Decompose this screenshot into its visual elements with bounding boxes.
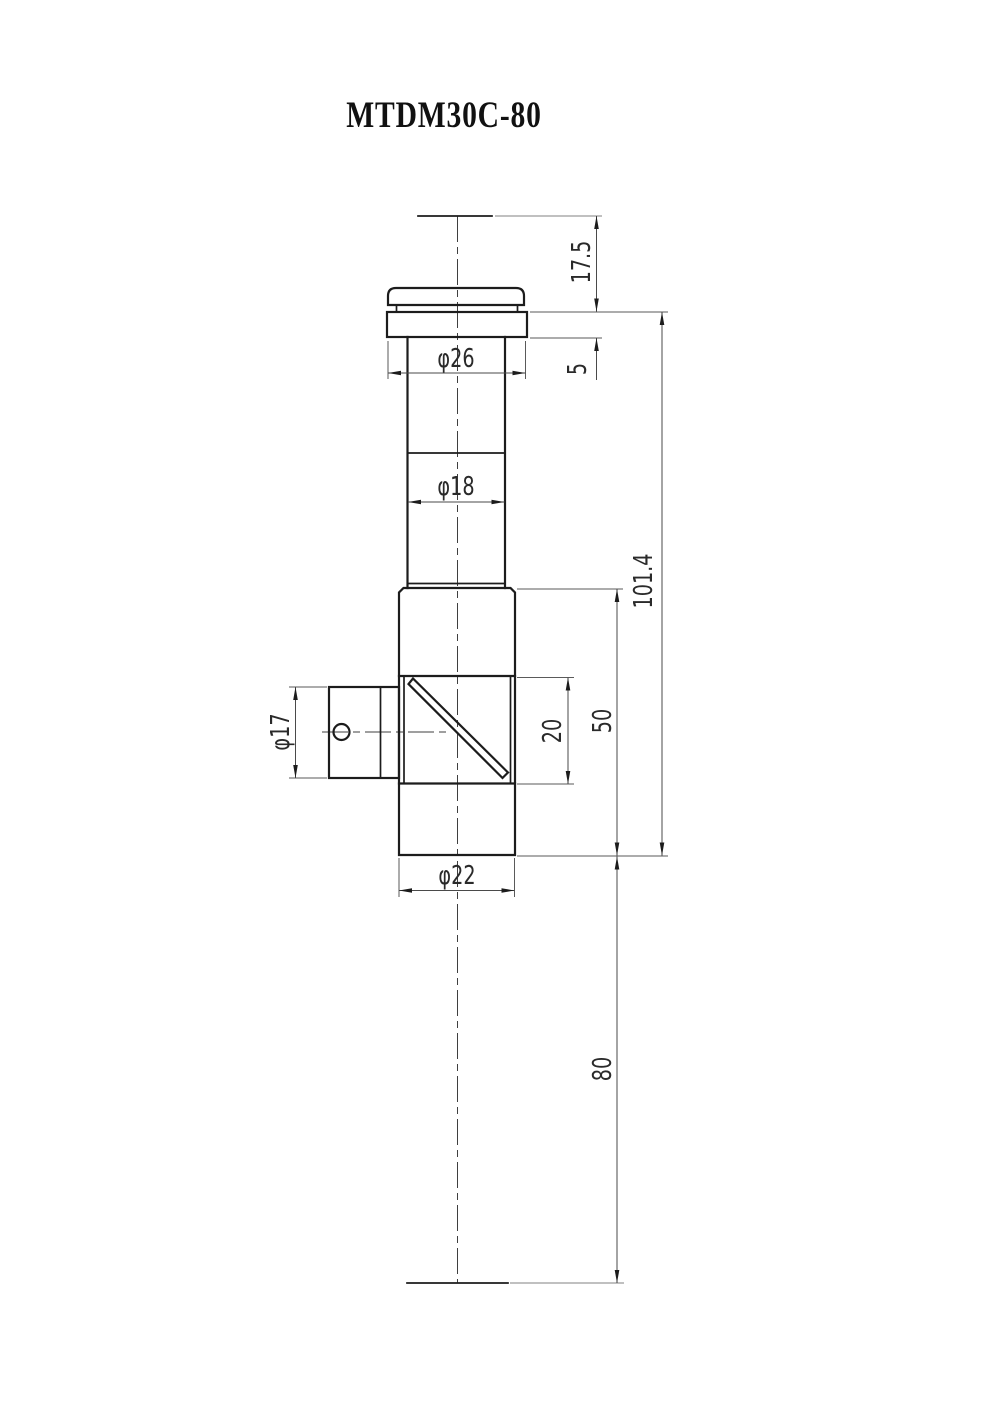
dim-label-phi17: φ17 <box>266 713 296 750</box>
technical-drawing-canvas: MTDM30C-80 <box>0 0 992 1403</box>
dimension-20: 20 <box>538 678 570 785</box>
dimension-50: 50 <box>588 589 619 856</box>
dimension-phi18: φ18 <box>408 472 505 504</box>
drawing-title: MTDM30C-80 <box>346 95 541 136</box>
center-lines <box>322 216 458 1283</box>
part-outline <box>329 216 527 1283</box>
dimension-phi22: φ22 <box>399 861 515 893</box>
dimension-17-5: 17.5 <box>567 216 599 312</box>
dimension-80: 80 <box>588 857 619 1284</box>
extension-lines <box>289 216 668 1283</box>
dim-label-5: 5 <box>563 363 593 375</box>
dim-label-phi26: φ26 <box>437 344 474 374</box>
dim-label-phi22: φ22 <box>438 861 475 891</box>
dimension-5: 5 <box>563 338 599 380</box>
drawing-page: MTDM30C-80 <box>0 0 992 1403</box>
dim-label-20: 20 <box>538 719 568 743</box>
mirror-45deg <box>409 679 509 779</box>
dim-label-80: 80 <box>588 1057 618 1081</box>
dim-label-phi18: φ18 <box>437 472 474 502</box>
dimension-101-4: 101.4 <box>629 312 664 856</box>
dim-label-17-5: 17.5 <box>567 241 597 284</box>
dim-label-101-4: 101.4 <box>629 553 659 608</box>
dim-label-50: 50 <box>588 709 618 733</box>
dimension-phi17: φ17 <box>266 687 298 778</box>
top-cap <box>388 288 524 305</box>
